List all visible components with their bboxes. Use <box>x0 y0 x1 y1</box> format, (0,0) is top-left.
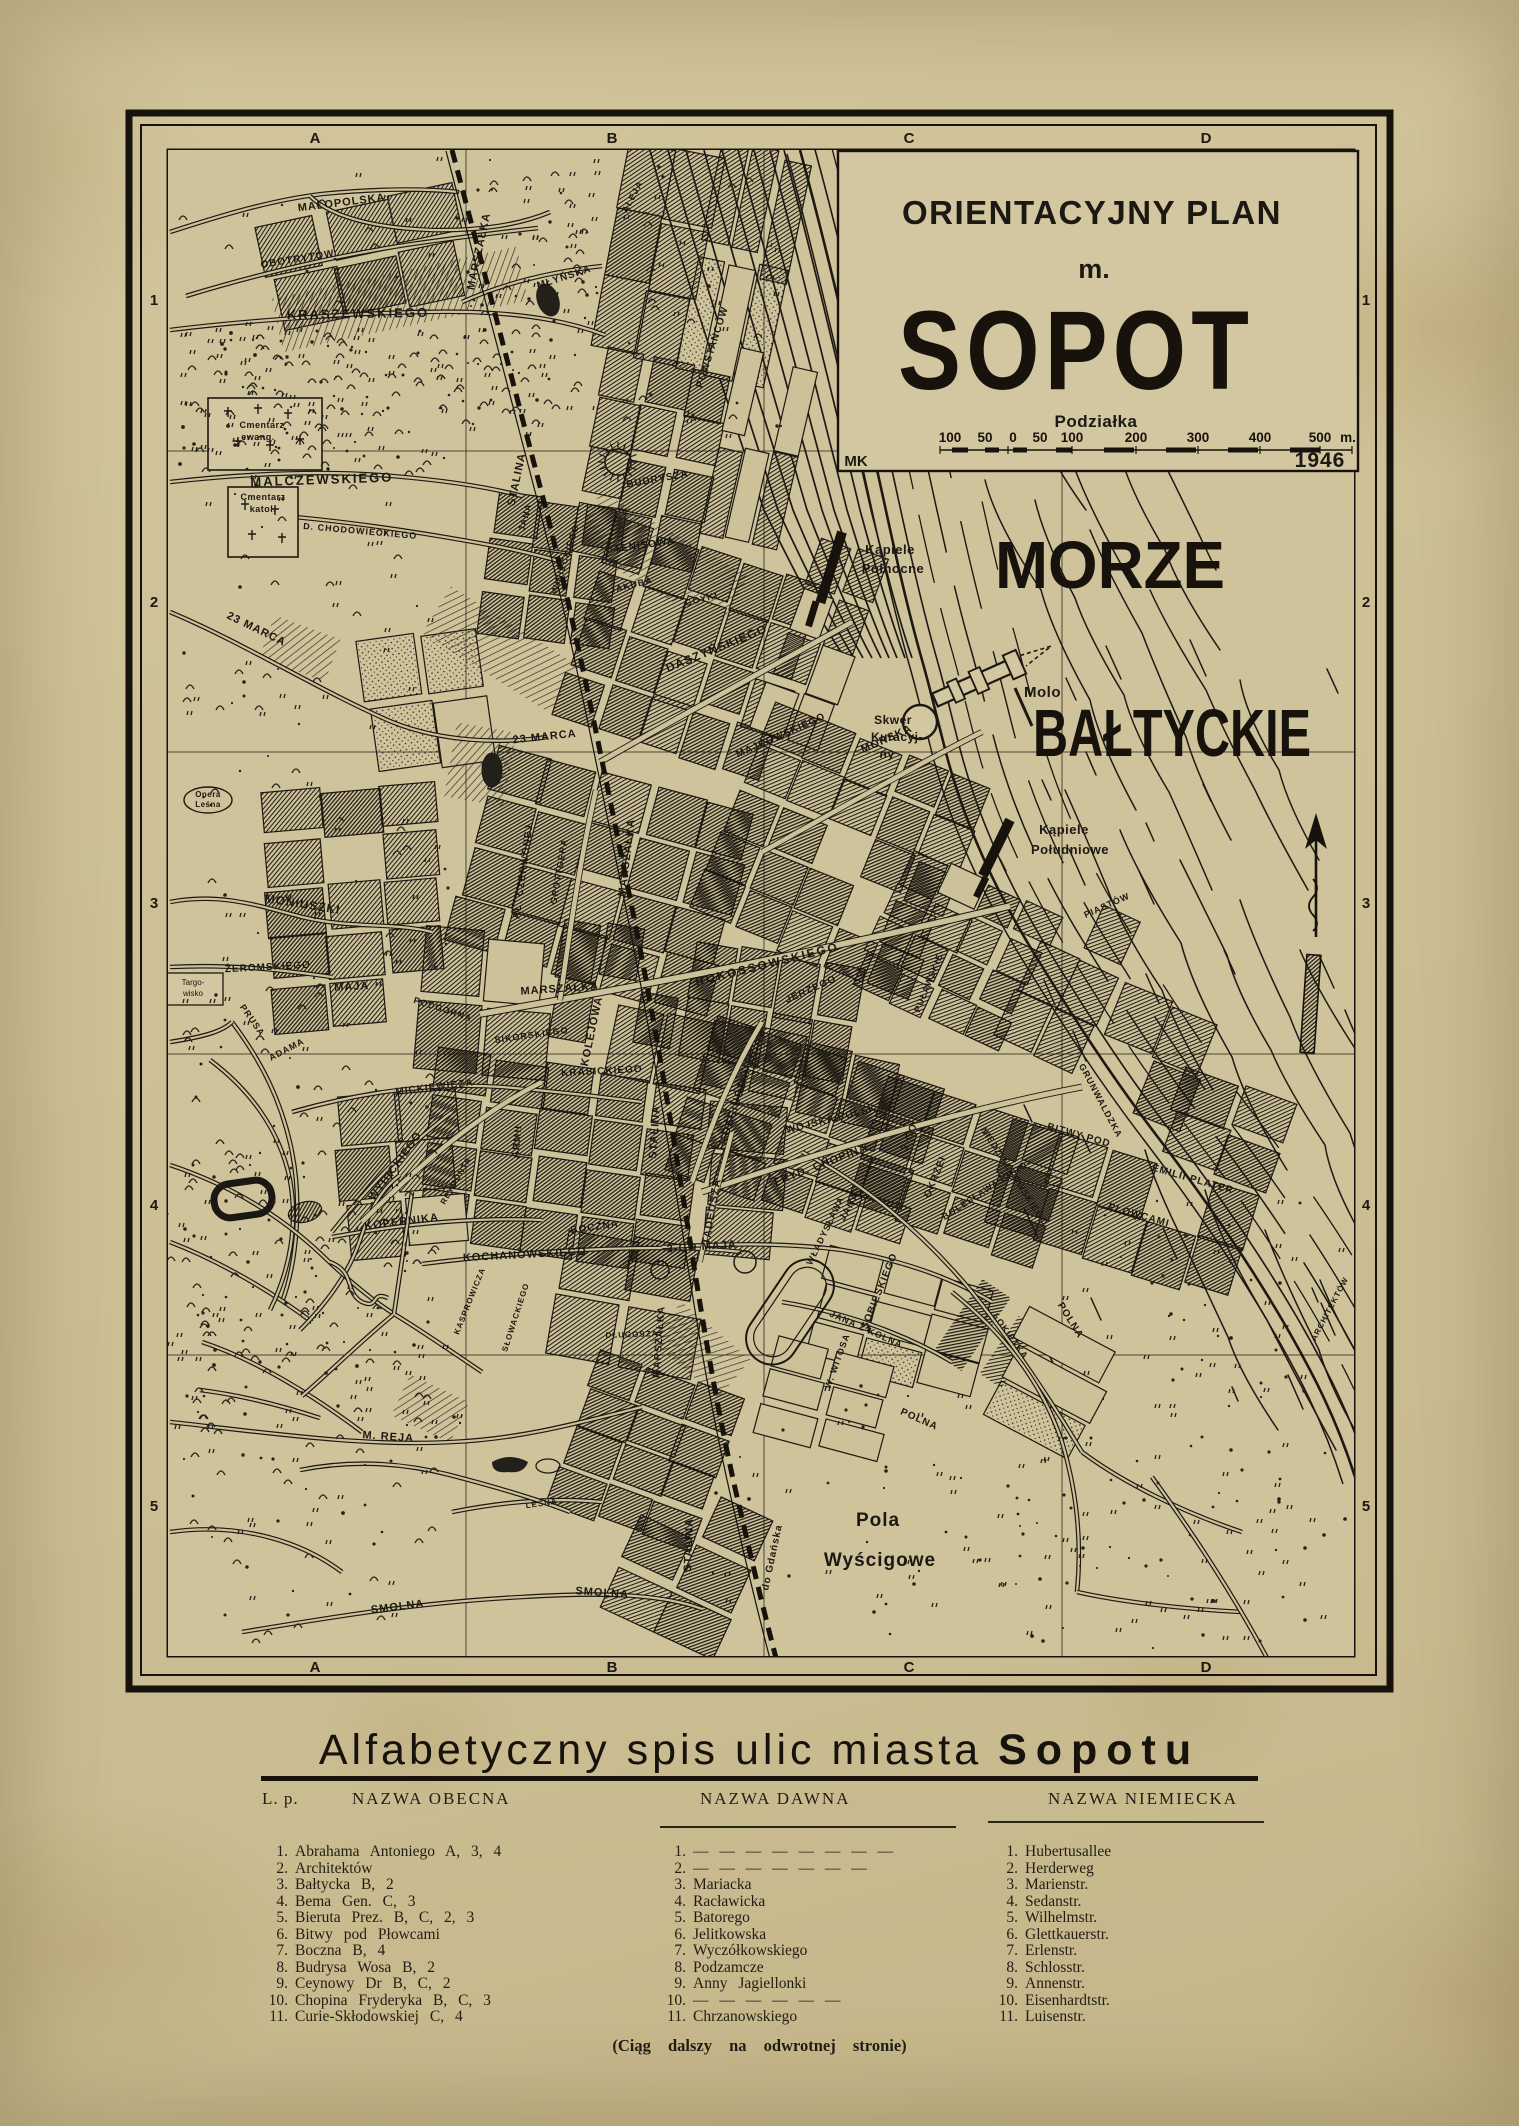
svg-text:Kąpiele: Kąpiele <box>1039 822 1089 837</box>
svg-text:5: 5 <box>150 1498 158 1515</box>
svg-text:4: 4 <box>1362 1197 1371 1214</box>
svg-text:0: 0 <box>1009 430 1017 445</box>
svg-text:A: A <box>310 130 321 147</box>
svg-text:Opera: Opera <box>195 790 221 799</box>
svg-text:Pola: Pola <box>856 1510 900 1531</box>
svg-text:C: C <box>904 1659 915 1676</box>
svg-text:BAŁTYCKIE: BAŁTYCKIE <box>1033 696 1311 771</box>
svg-text:KRASZEWSKIEGO: KRASZEWSKIEGO <box>287 305 430 322</box>
svg-text:Kąpiele: Kąpiele <box>865 542 915 557</box>
svg-text:1: 1 <box>150 292 158 309</box>
svg-text:100: 100 <box>1061 430 1084 445</box>
svg-text:D: D <box>1201 1659 1212 1676</box>
svg-text:3: 3 <box>1362 895 1370 912</box>
svg-text:Południowe: Południowe <box>1031 842 1109 857</box>
svg-text:A: A <box>310 1659 321 1676</box>
svg-text:2: 2 <box>150 594 158 611</box>
svg-text:m.: m. <box>1340 430 1356 445</box>
svg-text:STALINA: STALINA <box>682 1518 696 1572</box>
svg-text:B: B <box>607 1659 618 1676</box>
svg-text:3: 3 <box>150 895 158 912</box>
svg-text:400: 400 <box>1249 430 1272 445</box>
svg-text:katol.: katol. <box>250 504 277 514</box>
svg-text:MK: MK <box>844 453 867 470</box>
svg-text:ny: ny <box>879 747 894 761</box>
svg-text:D: D <box>1201 130 1212 147</box>
svg-text:Cmentarz: Cmentarz <box>239 420 284 430</box>
svg-text:Skwer: Skwer <box>874 713 912 727</box>
svg-text:Leśna: Leśna <box>195 800 221 809</box>
svg-text:DŁUGOSZA: DŁUGOSZA <box>605 1329 658 1340</box>
svg-text:SOPOT: SOPOT <box>898 288 1254 413</box>
svg-text:C: C <box>904 130 915 147</box>
svg-text:100: 100 <box>939 430 962 445</box>
svg-text:4: 4 <box>150 1197 159 1214</box>
svg-text:200: 200 <box>1125 430 1148 445</box>
svg-text:500: 500 <box>1309 430 1332 445</box>
svg-text:Północne: Północne <box>862 561 925 576</box>
svg-text:50: 50 <box>977 430 992 445</box>
svg-text:ewang.: ewang. <box>241 432 275 442</box>
svg-text:MORZE: MORZE <box>995 528 1225 603</box>
svg-text:MAJA: MAJA <box>334 980 370 994</box>
svg-text:300: 300 <box>1187 430 1210 445</box>
svg-text:50: 50 <box>1032 430 1047 445</box>
svg-text:Kuracyj-: Kuracyj- <box>871 730 923 744</box>
svg-text:1: 1 <box>1362 292 1370 309</box>
svg-text:Wyścigowe: Wyścigowe <box>824 1550 936 1571</box>
svg-text:Podziałka: Podziałka <box>1055 412 1138 431</box>
svg-text:Targo-: Targo- <box>182 978 205 987</box>
svg-text:5: 5 <box>1362 1498 1370 1515</box>
svg-text:ORIENTACYJNY PLAN: ORIENTACYJNY PLAN <box>902 194 1282 231</box>
svg-text:2: 2 <box>1362 594 1370 611</box>
svg-text:1946: 1946 <box>1295 449 1346 472</box>
svg-text:B: B <box>607 130 618 147</box>
svg-text:wisko: wisko <box>182 989 204 998</box>
svg-text:m.: m. <box>1078 254 1110 284</box>
